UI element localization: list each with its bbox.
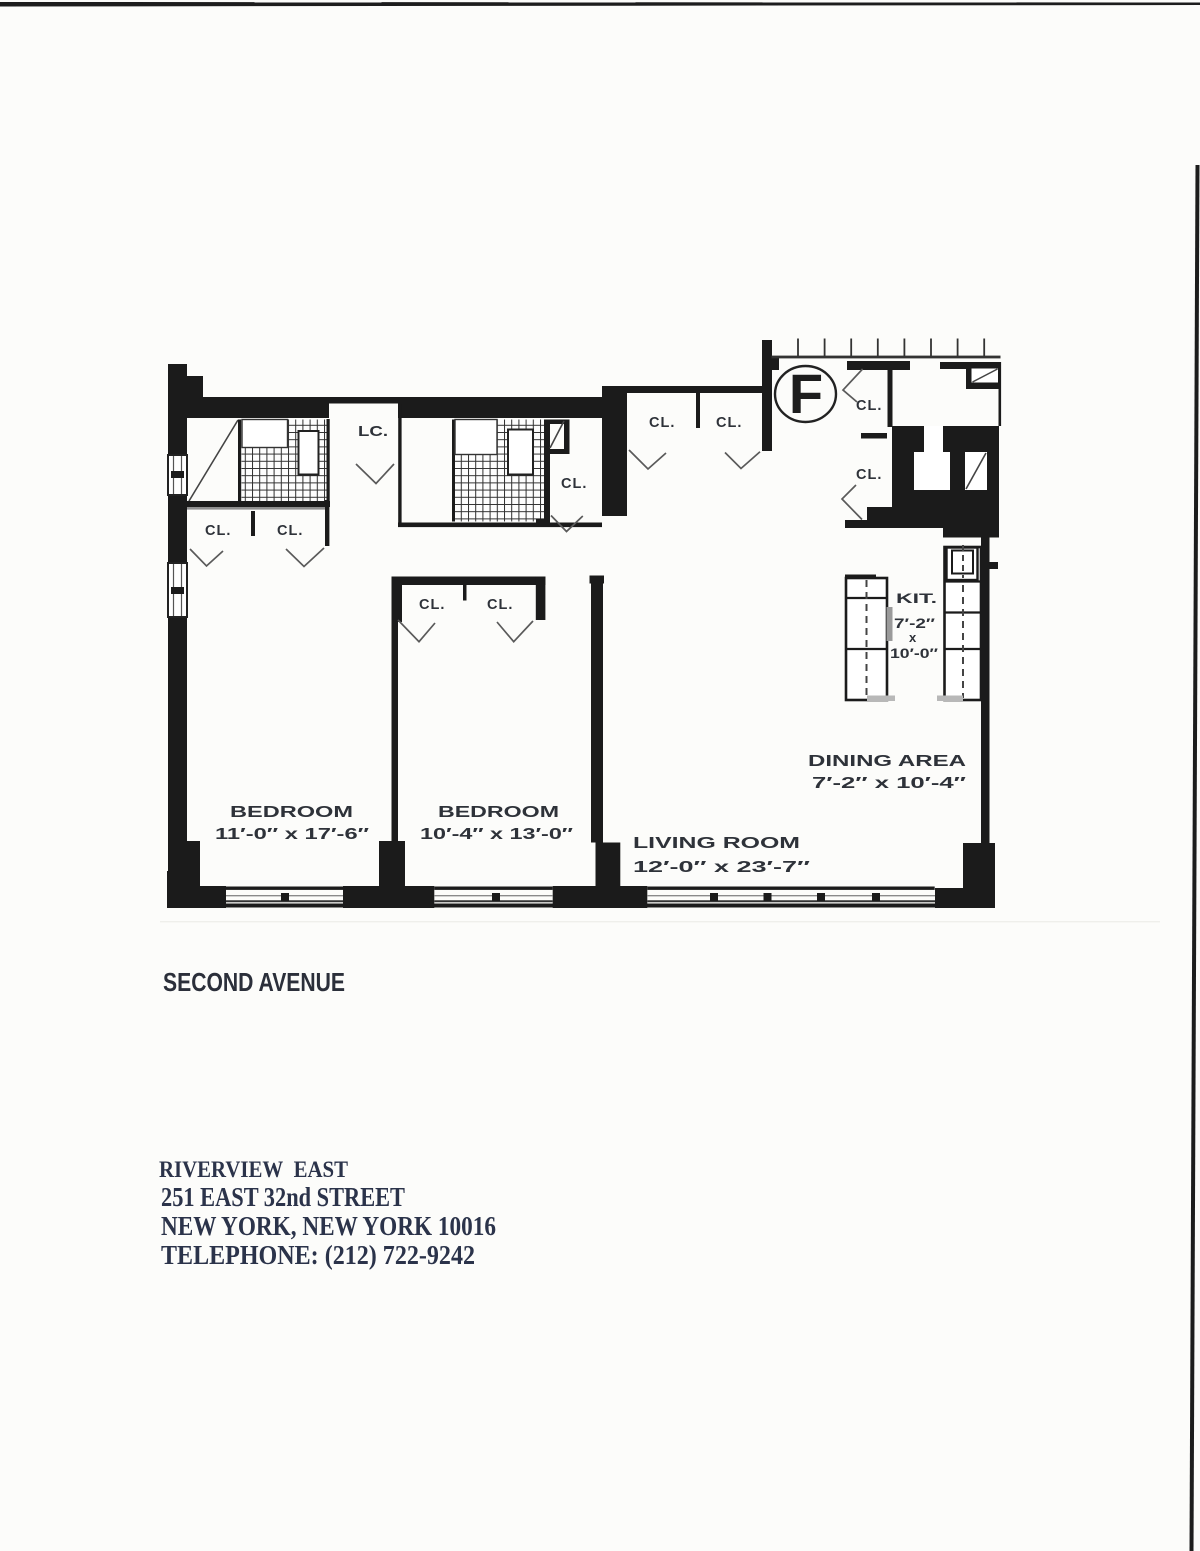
svg-text:F: F [789, 362, 823, 425]
svg-text:DINING AREA: DINING AREA [808, 753, 967, 770]
svg-text:CL.: CL. [649, 415, 675, 431]
svg-text:11′-0″ x 17′-6″: 11′-0″ x 17′-6″ [215, 826, 370, 843]
svg-text:10′-0″: 10′-0″ [890, 646, 939, 661]
svg-text:CL.: CL. [419, 597, 445, 613]
svg-text:7′-2″ x 10′-4″: 7′-2″ x 10′-4″ [812, 775, 967, 792]
svg-text:TELEPHONE: (212) 722-9242: TELEPHONE: (212) 722-9242 [161, 1240, 475, 1270]
svg-text:LIVING ROOM: LIVING ROOM [633, 835, 800, 852]
svg-text:CL.: CL. [561, 476, 587, 492]
svg-text:CL.: CL. [205, 523, 231, 539]
svg-text:BEDROOM: BEDROOM [230, 804, 353, 821]
svg-text:NEW YORK, NEW YORK 10016: NEW YORK, NEW YORK 10016 [161, 1211, 496, 1241]
svg-text:BEDROOM: BEDROOM [438, 804, 559, 821]
svg-text:LC.: LC. [358, 423, 388, 440]
svg-text:7′-2″: 7′-2″ [894, 616, 936, 631]
svg-text:KIT.: KIT. [896, 590, 937, 606]
svg-text:CL.: CL. [716, 415, 742, 431]
svg-text:251 EAST 32nd STREET: 251 EAST 32nd STREET [161, 1182, 405, 1212]
svg-text:10′-4″ x 13′-0″: 10′-4″ x 13′-0″ [420, 826, 574, 843]
svg-text:SECOND AVENUE: SECOND AVENUE [163, 967, 345, 997]
svg-text:CL.: CL. [856, 398, 882, 414]
svg-text:CL.: CL. [856, 467, 882, 483]
svg-text:RIVERVIEW EAST: RIVERVIEW EAST [159, 1157, 348, 1182]
svg-text:12′-0″ x 23′-7″: 12′-0″ x 23′-7″ [633, 859, 811, 876]
svg-text:CL.: CL. [277, 523, 303, 539]
svg-text:CL.: CL. [487, 597, 513, 613]
svg-text:x: x [909, 630, 917, 645]
